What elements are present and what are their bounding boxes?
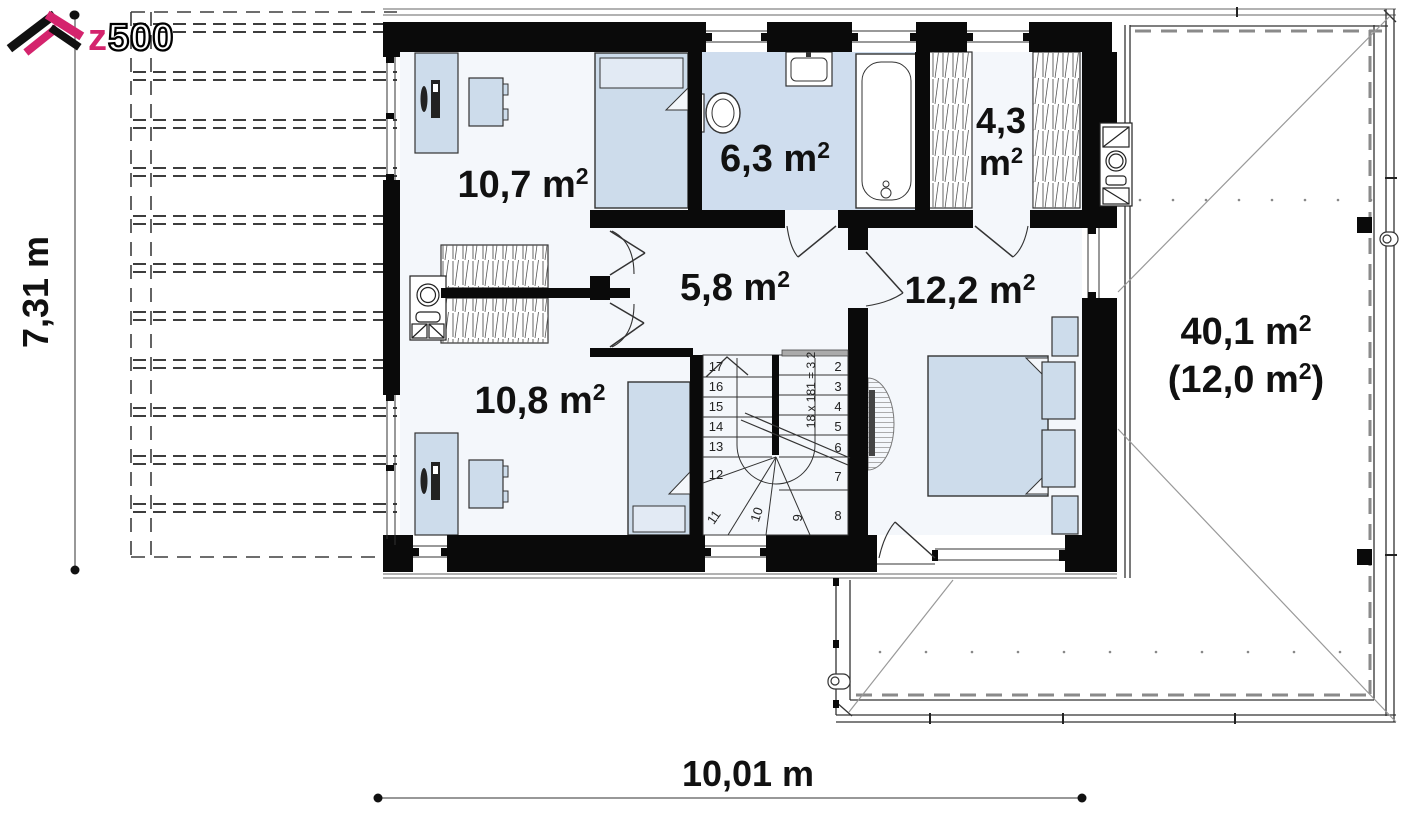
bed-single-top xyxy=(595,53,688,208)
desk-top-left xyxy=(415,53,458,153)
bed-single-bottom xyxy=(628,382,690,535)
dimension-dot xyxy=(71,566,80,575)
height-dimension-label: 7,31 m xyxy=(15,236,56,348)
pergola-beams xyxy=(133,24,397,512)
window-left-top xyxy=(386,57,395,180)
window-bottom-1 xyxy=(413,546,447,557)
wardrobe-label-line1: 4,3 xyxy=(976,100,1026,141)
svg-text:16: 16 xyxy=(709,379,723,394)
svg-text:4: 4 xyxy=(834,399,841,414)
window-left-bottom xyxy=(386,395,395,545)
window-bottom-2 xyxy=(705,546,766,557)
svg-text:9: 9 xyxy=(790,514,806,523)
chimney-block xyxy=(1357,549,1372,565)
gutter-fixture xyxy=(1380,232,1398,246)
chimney-block xyxy=(1357,217,1372,233)
window-top-3 xyxy=(967,31,1029,42)
hall-label: 5,8 m2 xyxy=(680,266,790,309)
logo-wordmark: z500 xyxy=(88,17,174,59)
flue-block-left xyxy=(410,276,446,340)
dimension-width: 10,01 m xyxy=(374,753,1087,803)
floor-plan-canvas: 7,31 m 10,01 m z500 xyxy=(0,0,1403,814)
nightstand xyxy=(1052,317,1078,356)
svg-text:5: 5 xyxy=(834,419,841,434)
width-dimension-label: 10,01 m xyxy=(682,753,814,794)
gutter-fixture xyxy=(828,674,850,689)
dimension-dot xyxy=(374,794,383,803)
dimension-dot xyxy=(1078,794,1087,803)
attic-area-label-line2: (12,0 m2) xyxy=(1168,358,1324,401)
chair-bottom-left xyxy=(469,460,508,508)
bedroom-top-left-label: 10,7 m2 xyxy=(457,163,588,206)
wardrobe-closet-left xyxy=(925,52,972,208)
svg-text:15: 15 xyxy=(709,399,723,414)
nightstand xyxy=(1052,496,1078,534)
pergola-roof-outline xyxy=(131,12,397,558)
attic-area-label-line1: 40,1 m2 xyxy=(1180,310,1311,353)
window-top-1 xyxy=(706,31,767,42)
svg-text:7: 7 xyxy=(834,469,841,484)
svg-text:13: 13 xyxy=(709,439,723,454)
roof-icon xyxy=(13,11,79,51)
z500-logo: z500 xyxy=(13,11,174,60)
bathroom-label: 6,3 m2 xyxy=(720,137,830,180)
svg-text:8: 8 xyxy=(834,508,841,523)
window-top-2 xyxy=(852,31,916,42)
bedroom-bottom-left-label: 10,8 m2 xyxy=(474,379,605,422)
svg-text:14: 14 xyxy=(709,419,723,434)
bedroom-right-label: 12,2 m2 xyxy=(904,269,1035,312)
balcony-window-band xyxy=(877,549,1065,564)
svg-text:2: 2 xyxy=(834,359,841,374)
sink xyxy=(786,48,832,86)
wardrobe-closet-right xyxy=(1033,52,1080,208)
stair-formula-note: 18 x 181 = 3 2 xyxy=(804,351,818,428)
dimension-height: 7,31 m xyxy=(15,11,80,575)
svg-text:17: 17 xyxy=(709,359,723,374)
svg-text:6: 6 xyxy=(834,440,841,455)
flue-block-right xyxy=(1100,123,1132,206)
floor-plan-page: 7,31 m 10,01 m z500 xyxy=(0,0,1403,814)
bathtub xyxy=(856,54,917,208)
svg-text:12: 12 xyxy=(709,467,723,482)
window-right xyxy=(1088,228,1099,298)
desk-bottom-left xyxy=(415,433,458,535)
chair-top-left xyxy=(469,78,508,126)
svg-text:3: 3 xyxy=(834,379,841,394)
